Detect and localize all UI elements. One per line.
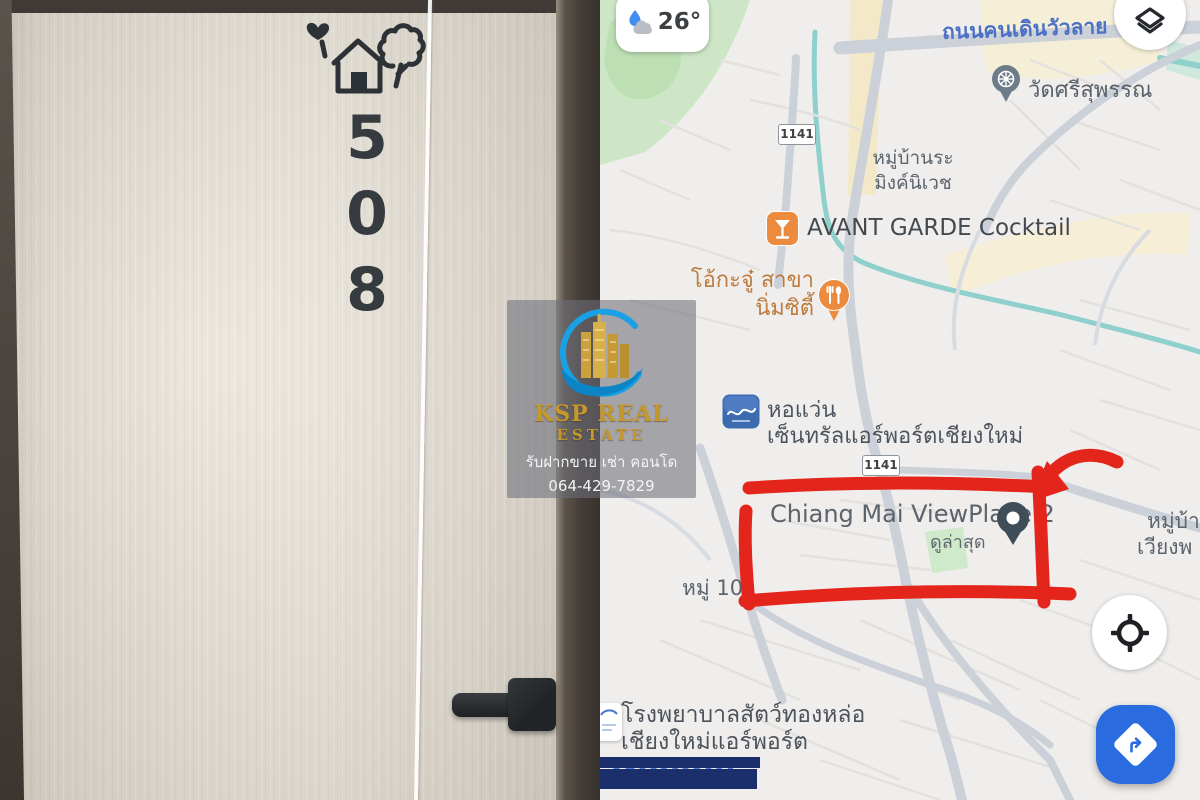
- door-handle-plate: [508, 678, 556, 731]
- weather-chip[interactable]: 26°: [616, 0, 709, 52]
- ksp-logo: [537, 306, 667, 402]
- room-number-digit: 5: [328, 100, 406, 176]
- watermark-brand-top: KSP REAL: [534, 402, 669, 426]
- directions-diamond-icon: [1112, 721, 1159, 768]
- vet-hospital-icon[interactable]: [600, 703, 622, 741]
- directions-fab[interactable]: [1096, 705, 1175, 784]
- room-number-digit: 0: [328, 176, 406, 252]
- my-location-button[interactable]: [1092, 595, 1167, 670]
- watermark-brand-bottom: ESTATE: [556, 426, 646, 444]
- weather-icon: [624, 8, 654, 36]
- door-frame-top: [0, 0, 600, 13]
- house-heart-tree-icon: [298, 14, 426, 100]
- layers-icon: [1132, 3, 1168, 43]
- censor-bar-top: [600, 757, 760, 768]
- listing-collage: 5 0 8: [0, 0, 1200, 800]
- watermark-phone: 064-429-7829: [548, 474, 654, 498]
- weather-temp: 26°: [658, 9, 702, 35]
- watermark-tagline: รับฝากขาย เช่า คอนโด: [526, 450, 678, 474]
- agency-watermark: KSP REAL ESTATE รับฝากขาย เช่า คอนโด 064…: [507, 300, 696, 498]
- room-number: 5 0 8: [328, 100, 406, 328]
- room-number-digit: 8: [328, 252, 406, 328]
- location-crosshair-icon: [1111, 614, 1149, 652]
- censor-bar-bottom: [600, 769, 757, 789]
